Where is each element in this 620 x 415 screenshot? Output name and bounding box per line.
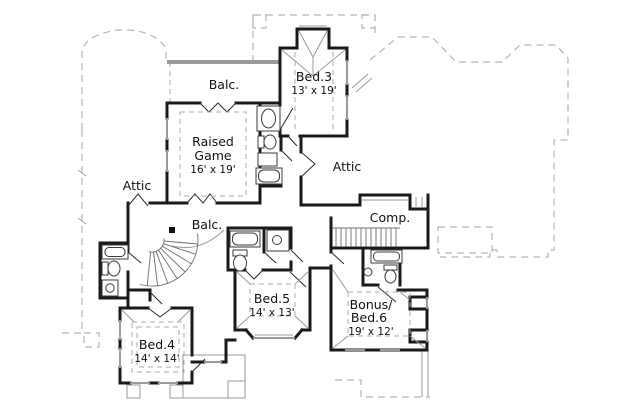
curved-staircase — [140, 234, 198, 287]
room-label-bonus-line2: Bed.6 — [351, 310, 387, 325]
floor-plan-canvas: Balc. Bed.3 13' x 19' Raised Game 16' x … — [0, 0, 620, 415]
floor-plan-page: Balc. Bed.3 13' x 19' Raised Game 16' x … — [0, 0, 620, 415]
room-label-raised-game-line1: Raised — [192, 134, 234, 149]
room-label-bed3: Bed.3 — [296, 69, 332, 84]
room-label-balc-top: Balc. — [209, 77, 240, 92]
room-dims-bed5: 14' x 13' — [249, 307, 294, 319]
room-label-bed5: Bed.5 — [254, 291, 290, 306]
room-label-comp: Comp. — [370, 210, 410, 225]
room-dims-raised-game: 16' x 19' — [190, 164, 235, 176]
room-label-attic-right: Attic — [333, 159, 362, 174]
room-label-raised-game-line2: Game — [194, 148, 232, 163]
straight-staircase — [332, 228, 400, 247]
room-dims-bonus: 19' x 12' — [348, 326, 393, 338]
room-label-balc-mid: Balc. — [192, 217, 223, 232]
room-dims-bed4: 14' x 14' — [134, 353, 179, 365]
room-dims-bed3: 13' x 19' — [291, 85, 336, 97]
room-label-attic-left: Attic — [123, 178, 152, 193]
bathroom-fixtures — [102, 106, 402, 296]
room-label-bed4: Bed.4 — [139, 337, 175, 352]
